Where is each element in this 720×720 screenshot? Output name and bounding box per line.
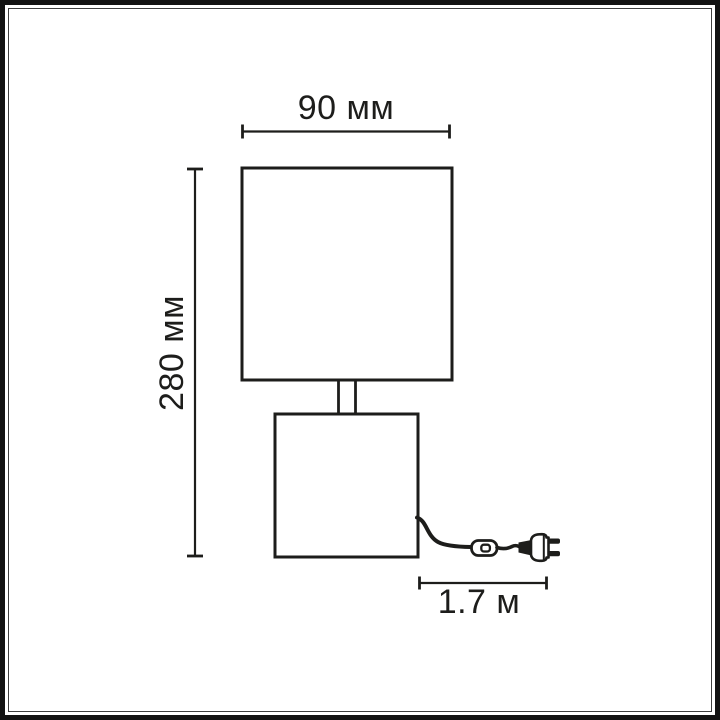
cord-dimension-label: 1.7 м xyxy=(408,584,550,620)
power-cord-segment xyxy=(497,546,519,549)
inline-switch-icon xyxy=(472,541,498,556)
lamp-base xyxy=(275,414,418,557)
width-dimension-label: 90 мм xyxy=(242,90,450,126)
diagram-canvas: 90 мм 280 мм 1.7 м xyxy=(0,0,720,720)
height-dimension-label: 280 мм xyxy=(154,295,190,411)
power-cord xyxy=(417,518,471,548)
power-plug-icon xyxy=(519,534,561,561)
lampshade xyxy=(242,168,452,380)
lamp-stem xyxy=(339,381,356,413)
